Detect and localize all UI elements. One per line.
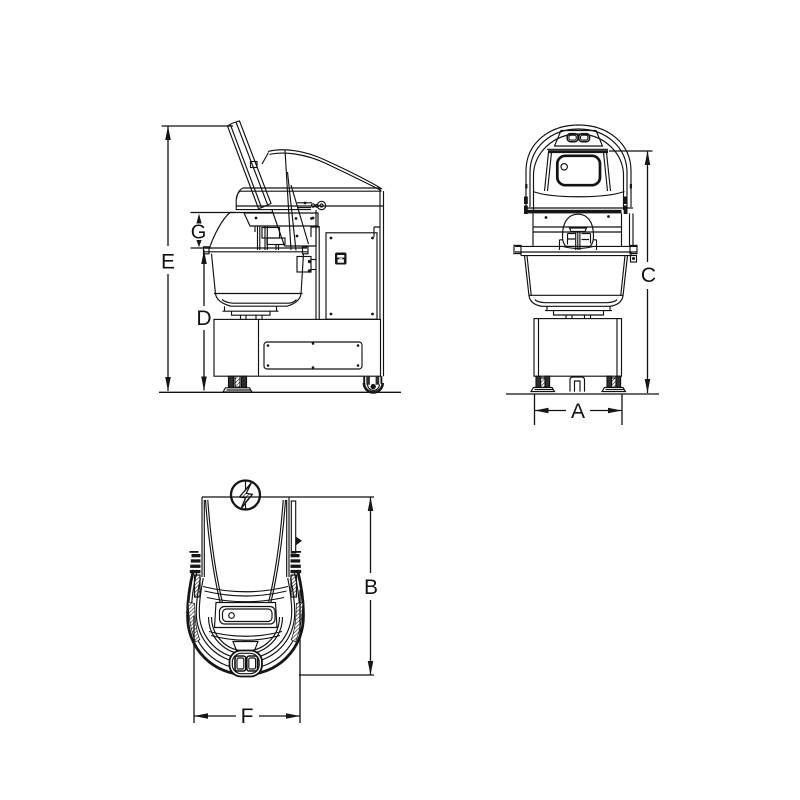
svg-text:A: A (571, 400, 585, 423)
svg-text:F: F (241, 705, 254, 728)
svg-text:E: E (161, 251, 175, 274)
svg-text:D: D (196, 307, 211, 330)
svg-text:G: G (191, 222, 207, 244)
svg-text:C: C (641, 264, 656, 287)
svg-text:B: B (364, 576, 378, 599)
